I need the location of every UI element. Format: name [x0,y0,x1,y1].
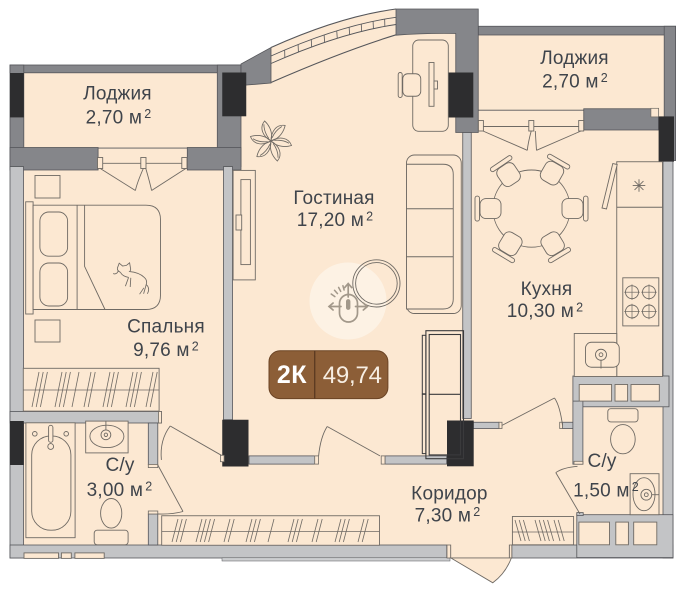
svg-text:Кухня: Кухня [521,279,573,300]
svg-text:2К: 2К [277,361,307,389]
svg-text:Лоджия: Лоджия [540,48,609,69]
svg-text:2,70 м2: 2,70 м2 [542,71,608,93]
svg-text:49,74: 49,74 [323,362,382,389]
svg-text:С/у: С/у [587,451,616,472]
svg-text:Лоджия: Лоджия [83,83,152,104]
svg-text:17,20 м2: 17,20 м2 [297,209,373,231]
svg-text:Гостиная: Гостиная [293,188,374,209]
svg-text:9,76 м2: 9,76 м2 [133,340,199,362]
svg-text:7,30 м2: 7,30 м2 [415,505,481,527]
svg-text:Коридор: Коридор [411,483,487,504]
svg-text:1,50 м2: 1,50 м2 [573,480,639,502]
svg-text:С/у: С/у [105,455,134,476]
svg-text:Спальня: Спальня [127,317,205,338]
svg-text:10,30 м2: 10,30 м2 [507,300,583,322]
svg-text:3,00 м2: 3,00 м2 [87,479,153,501]
svg-text:2,70 м2: 2,70 м2 [86,107,152,129]
